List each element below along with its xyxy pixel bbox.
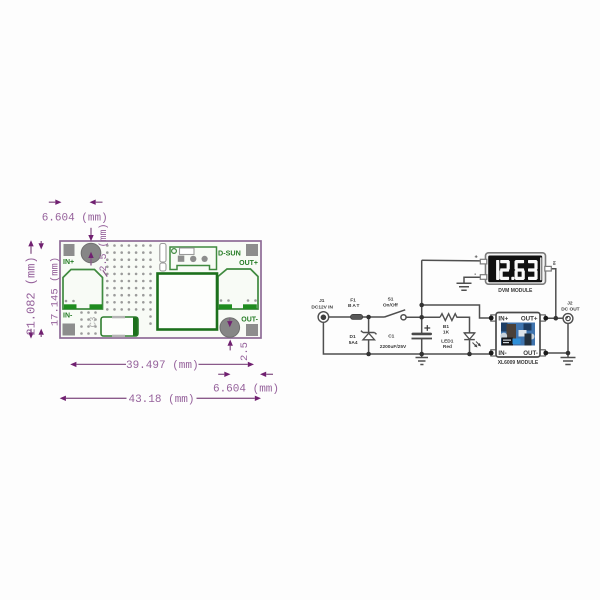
svg-text:J2: J2 xyxy=(567,301,573,307)
svg-text:LED1: LED1 xyxy=(441,339,454,345)
svg-text:D1: D1 xyxy=(350,334,356,340)
svg-text:F1: F1 xyxy=(350,298,356,304)
svg-text:OUT-: OUT- xyxy=(241,317,258,324)
svg-text:+: + xyxy=(475,254,478,260)
svg-text:6.604 (mm): 6.604 (mm) xyxy=(213,384,279,396)
svg-text:OUT-: OUT- xyxy=(523,350,538,357)
svg-text:OUT+: OUT+ xyxy=(521,315,538,322)
svg-text:IN: IN xyxy=(552,261,557,265)
svg-text:39.497 (mm): 39.497 (mm) xyxy=(126,360,199,372)
svg-text:Red: Red xyxy=(443,344,452,350)
svg-text:IN-: IN- xyxy=(63,313,73,320)
svg-text:S1: S1 xyxy=(388,297,394,303)
svg-text:BAT: BAT xyxy=(348,303,361,309)
svg-text:IN-: IN- xyxy=(498,350,506,357)
svg-text:OUT+: OUT+ xyxy=(239,260,258,267)
svg-text:21.082 (mm): 21.082 (mm) xyxy=(25,256,39,335)
svg-text:C3: C3 xyxy=(89,317,99,328)
svg-text:IN+: IN+ xyxy=(63,259,74,266)
svg-text:IN+: IN+ xyxy=(498,315,508,322)
svg-text:DC OUT: DC OUT xyxy=(561,307,579,313)
svg-text:2.5: 2.5 xyxy=(239,342,251,361)
svg-text:2.5 (mm): 2.5 (mm) xyxy=(98,223,110,271)
svg-text:J1: J1 xyxy=(319,298,325,304)
svg-text:On/Off: On/Off xyxy=(383,303,398,309)
svg-text:1K: 1K xyxy=(443,329,450,335)
svg-text:B1: B1 xyxy=(443,324,449,330)
svg-text:6.604 (mm): 6.604 (mm) xyxy=(42,213,108,225)
svg-text:C1: C1 xyxy=(388,334,394,340)
svg-text:-: - xyxy=(474,272,476,278)
svg-text:17.145 (mm): 17.145 (mm) xyxy=(50,257,62,326)
svg-text:2200uF/25V: 2200uF/25V xyxy=(380,344,407,350)
svg-text:D-SUN: D-SUN xyxy=(218,249,241,258)
svg-text:DC12V IN: DC12V IN xyxy=(311,305,333,311)
svg-text:XL6009 MODULE: XL6009 MODULE xyxy=(498,360,539,366)
svg-text:DVM MODULE: DVM MODULE xyxy=(498,288,533,294)
svg-text:5A4: 5A4 xyxy=(349,340,358,346)
svg-text:43.18 (mm): 43.18 (mm) xyxy=(128,394,194,406)
